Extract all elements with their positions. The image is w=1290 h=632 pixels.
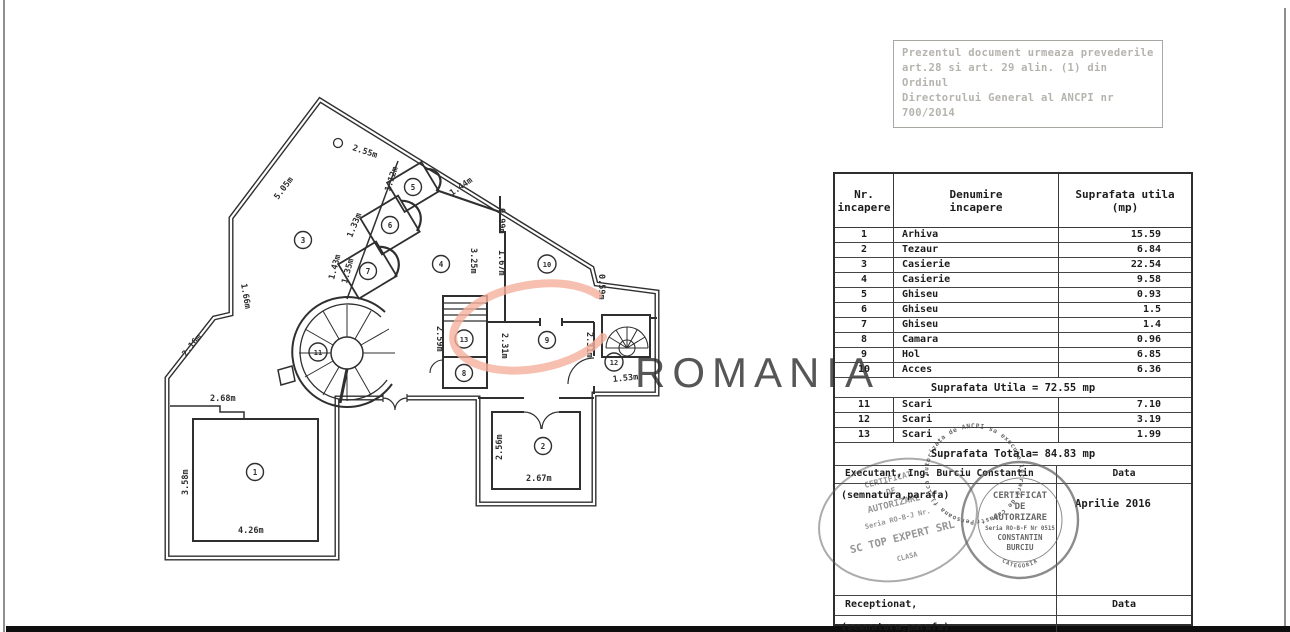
ancpi-note-box: Prezentul document urmeaza prevederile a… [893, 40, 1163, 128]
room-number: 3 [301, 236, 306, 245]
room-area-cell: 15.59 [1059, 228, 1191, 242]
room-name-cell: Tezaur [894, 243, 1059, 257]
table-row: 4Casierie9.58 [835, 273, 1191, 288]
header-text: incapere [950, 201, 1003, 214]
dim-label: 1.33m [346, 212, 365, 239]
room-number: 5 [411, 183, 416, 192]
table-row: 2Tezaur6.84 [835, 243, 1191, 258]
table-row: 12Scari3.19 [835, 413, 1191, 428]
table-row: 3Casierie22.54 [835, 258, 1191, 273]
header-text: Denumire [950, 188, 1003, 201]
room-number: 4 [439, 260, 444, 269]
dim-label: 2.68m [210, 394, 236, 404]
room-number-cell: 2 [835, 243, 894, 257]
room-name-cell: Camara [894, 333, 1059, 347]
table-row: 11Scari7.10 [835, 398, 1191, 413]
room-name-cell: Casierie [894, 273, 1059, 287]
semnatura-parafa-label: (semnatura,parafa) [835, 616, 1057, 632]
survey-point-symbol [334, 139, 343, 148]
data-label: Data [1057, 596, 1191, 615]
room-number-cell: 13 [835, 428, 894, 442]
room-area-cell: 1.4 [1059, 318, 1191, 332]
dim-label: 2.31m [499, 333, 509, 359]
table-row: 13Scari1.99 [835, 428, 1191, 443]
header-text: Suprafata utila [1075, 188, 1174, 201]
header-denumire: Denumire incapere [894, 174, 1059, 227]
room-number-cell: 7 [835, 318, 894, 332]
room-number-cell: 1 [835, 228, 894, 242]
room-area-cell: 6.84 [1059, 243, 1191, 257]
room-number: 1 [253, 468, 258, 477]
room-area-table: Nr. incapere Denumire incapere Suprafata… [833, 172, 1193, 626]
room-number: 10 [543, 261, 551, 269]
room-area-cell: 6.36 [1059, 363, 1191, 377]
room-name-cell: Scari [894, 428, 1059, 442]
scanned-document-page: 1 2 3 4 5 6 7 8 9 10 11 12 13 2.55m 5.05… [0, 0, 1290, 632]
executant-row: Executant, Ing. Burciu Constantin Data [835, 466, 1191, 484]
room-number: 13 [460, 336, 468, 344]
room-number-cell: 10 [835, 363, 894, 377]
room-name-cell: Hol [894, 348, 1059, 362]
room-name-cell: Casierie [894, 258, 1059, 272]
dim-label: 4.26m [238, 526, 264, 536]
dim-label: 5.05m [272, 175, 295, 201]
table-row: 1Arhiva15.59 [835, 228, 1191, 243]
signature-area-2: (semnatura,parafa) [835, 616, 1191, 632]
data-label: Data [1057, 466, 1191, 483]
note-line: Directorului General al ANCPI nr [902, 91, 1154, 106]
room-number-cell: 4 [835, 273, 894, 287]
dim-label: 2.55m [351, 143, 378, 160]
room-number-cell: 3 [835, 258, 894, 272]
empty-date-cell [1057, 616, 1191, 632]
receptionat-label: Receptionat, [835, 596, 1057, 615]
room-area-cell: 22.54 [1059, 258, 1191, 272]
room-number: 11 [314, 349, 322, 357]
dim-label: 1.66m [238, 283, 252, 310]
room-number-cell: 12 [835, 413, 894, 427]
semnatura-parafa-label: (semnatura,parafa) [835, 484, 1057, 595]
floor-plan-walls [167, 100, 657, 558]
executant-label: Executant, Ing. Burciu Constantin [835, 466, 1057, 483]
room-area-cell: 0.93 [1059, 288, 1191, 302]
spiral-staircase [278, 297, 395, 407]
room-area-cell: 7.10 [1059, 398, 1191, 412]
room-number: 2 [541, 442, 546, 451]
note-line: Prezentul document urmeaza prevederile [902, 46, 1154, 61]
header-text: incapere [838, 201, 891, 214]
header-text: (mp) [1112, 201, 1139, 214]
dim-label: 2.67m [526, 474, 552, 484]
room-name-cell: Acces [894, 363, 1059, 377]
table-row: 5Ghiseu0.93 [835, 288, 1191, 303]
room-number-cell: 5 [835, 288, 894, 302]
dim-label: 3.25m [468, 248, 478, 274]
room-name-cell: Ghiseu [894, 288, 1059, 302]
room-name-cell: Scari [894, 413, 1059, 427]
dim-label: 1.12m [383, 165, 400, 192]
header-nr: Nr. incapere [835, 174, 894, 227]
note-line: 700/2014 [902, 106, 1154, 121]
table-row: 8Camara0.96 [835, 333, 1191, 348]
suprafata-utila-band: Suprafata Utila = 72.55 mp [835, 378, 1191, 398]
dim-label: 2.56m [495, 434, 505, 460]
note-line: art.28 si art. 29 alin. (1) din Ordinul [902, 61, 1154, 91]
room-number-cell: 8 [835, 333, 894, 347]
signature-area: (semnatura,parafa) Aprilie 2016 [835, 484, 1191, 596]
table-row: 6Ghiseu1.5 [835, 303, 1191, 318]
dim-label: 2.59m [434, 326, 444, 352]
room-number: 9 [545, 336, 550, 345]
dim-label: 0.99m [496, 208, 506, 234]
receptionat-row: Receptionat, Data [835, 596, 1191, 616]
dim-label: 1.67m [496, 250, 506, 276]
romania-watermark: ROMANIA [453, 283, 880, 396]
room-number: 7 [366, 267, 371, 276]
date-value: Aprilie 2016 [1057, 484, 1191, 595]
table-row: 9Hol6.85 [835, 348, 1191, 363]
header-text: Nr. [854, 188, 874, 201]
room-number-cell: 11 [835, 398, 894, 412]
room-name-cell: Ghiseu [894, 318, 1059, 332]
suprafata-totala-band: Suprafata Totala= 84.83 mp [835, 443, 1191, 466]
dim-label: 3.58m [181, 469, 191, 495]
room-area-cell: 6.85 [1059, 348, 1191, 362]
table-row: 10Acces6.36 [835, 363, 1191, 378]
room-name-cell: Arhiva [894, 228, 1059, 242]
room-area-cell: 1.5 [1059, 303, 1191, 317]
room-number: 8 [462, 369, 467, 378]
room-area-cell: 3.19 [1059, 413, 1191, 427]
room-area-cell: 1.99 [1059, 428, 1191, 442]
table-row: 7Ghiseu1.4 [835, 318, 1191, 333]
room-number: 6 [388, 221, 393, 230]
room-name-cell: Ghiseu [894, 303, 1059, 317]
dim-label: 2.16m [180, 333, 204, 359]
room-area-cell: 0.96 [1059, 333, 1191, 347]
room-number-cell: 6 [835, 303, 894, 317]
room-number-cell: 9 [835, 348, 894, 362]
room-number: 12 [610, 359, 618, 367]
header-suprafata: Suprafata utila (mp) [1059, 174, 1191, 227]
table-header-row: Nr. incapere Denumire incapere Suprafata… [835, 174, 1191, 228]
room-area-cell: 9.58 [1059, 273, 1191, 287]
room-name-cell: Scari [894, 398, 1059, 412]
